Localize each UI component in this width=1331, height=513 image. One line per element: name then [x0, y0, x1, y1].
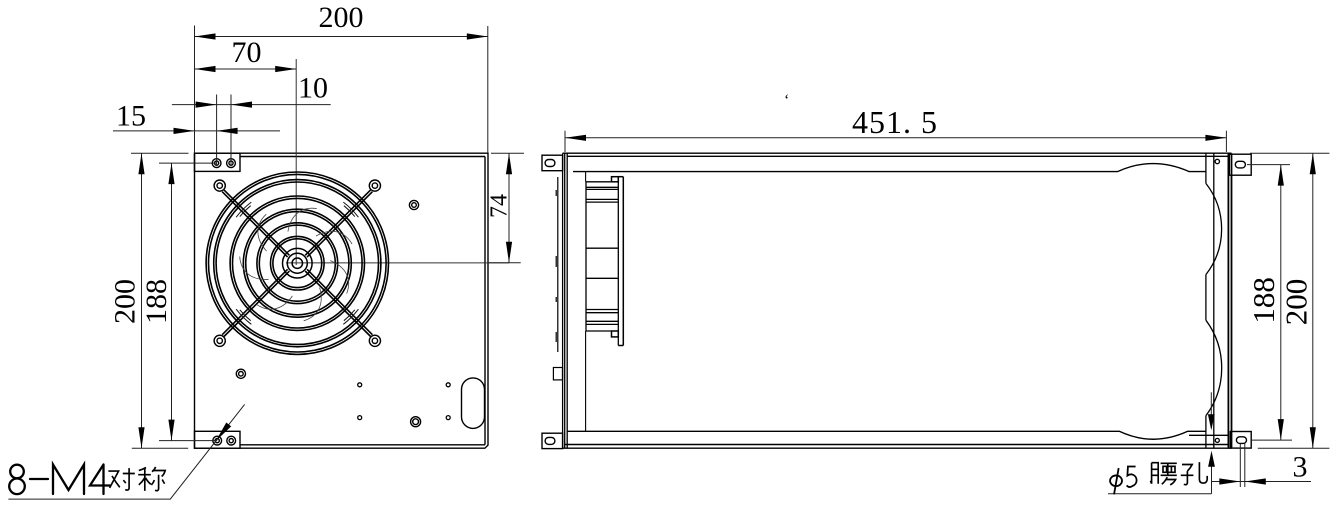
svg-text:200: 200	[319, 1, 364, 34]
svg-text:70: 70	[232, 36, 262, 69]
svg-text:‘: ‘	[784, 92, 789, 109]
svg-text:3: 3	[1293, 451, 1308, 484]
svg-text:15: 15	[116, 100, 146, 133]
svg-text:188: 188	[140, 279, 173, 324]
svg-text:200: 200	[109, 279, 142, 324]
svg-text:451. 5: 451. 5	[852, 104, 938, 140]
svg-text:10: 10	[298, 72, 328, 105]
svg-text:200: 200	[1279, 279, 1314, 326]
svg-text:74: 74	[487, 194, 513, 218]
svg-text:188: 188	[1246, 277, 1281, 324]
